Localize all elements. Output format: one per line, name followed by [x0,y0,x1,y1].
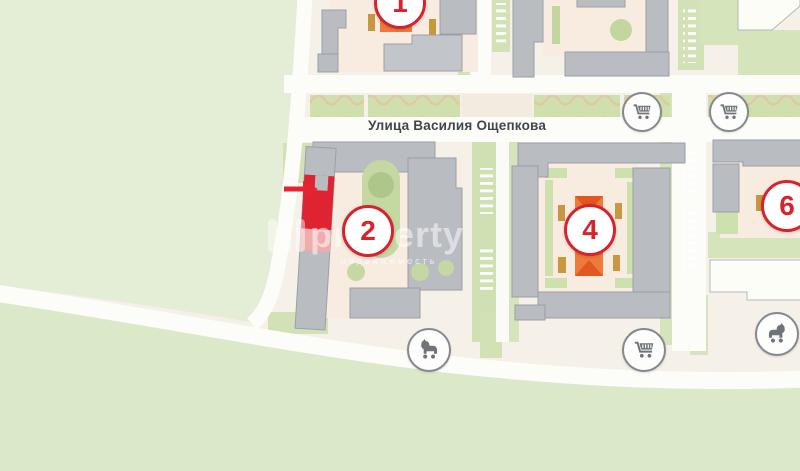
lawn-circle [610,19,632,41]
building [515,305,545,320]
shop-marker [709,92,749,132]
shopping-cart-icon [718,101,740,123]
building [577,0,625,7]
building-marker-4[interactable]: 4 [564,204,616,256]
residential-complex-map: property недвижимость Улица Василия Ощеп… [0,0,800,471]
shop-marker [622,328,666,372]
upper-road [284,75,800,93]
building [713,140,800,166]
map-canvas [0,0,800,471]
playground-marker [407,328,451,372]
building [538,292,670,318]
building [633,168,670,296]
green-field-west [0,0,301,322]
pedestrian-path [496,142,509,342]
shop-marker [622,92,662,132]
building-number: 2 [360,217,376,245]
building [512,166,538,297]
building-marker-2[interactable]: 2 [342,205,394,257]
shopping-cart-icon [631,101,653,123]
street-name-label: Улица Василия Ощепкова [347,118,567,133]
building [440,0,476,34]
building [350,288,420,318]
toy-horse-icon [417,338,441,362]
toy-horse-icon [765,322,789,346]
building-number: 6 [779,192,795,220]
shopping-cart-icon [632,338,656,362]
building [565,52,669,76]
building [318,54,338,72]
building-number: 4 [582,216,598,244]
building [646,0,668,52]
building-number: 1 [392,0,408,17]
playground-marker [755,312,799,356]
building [713,164,739,212]
